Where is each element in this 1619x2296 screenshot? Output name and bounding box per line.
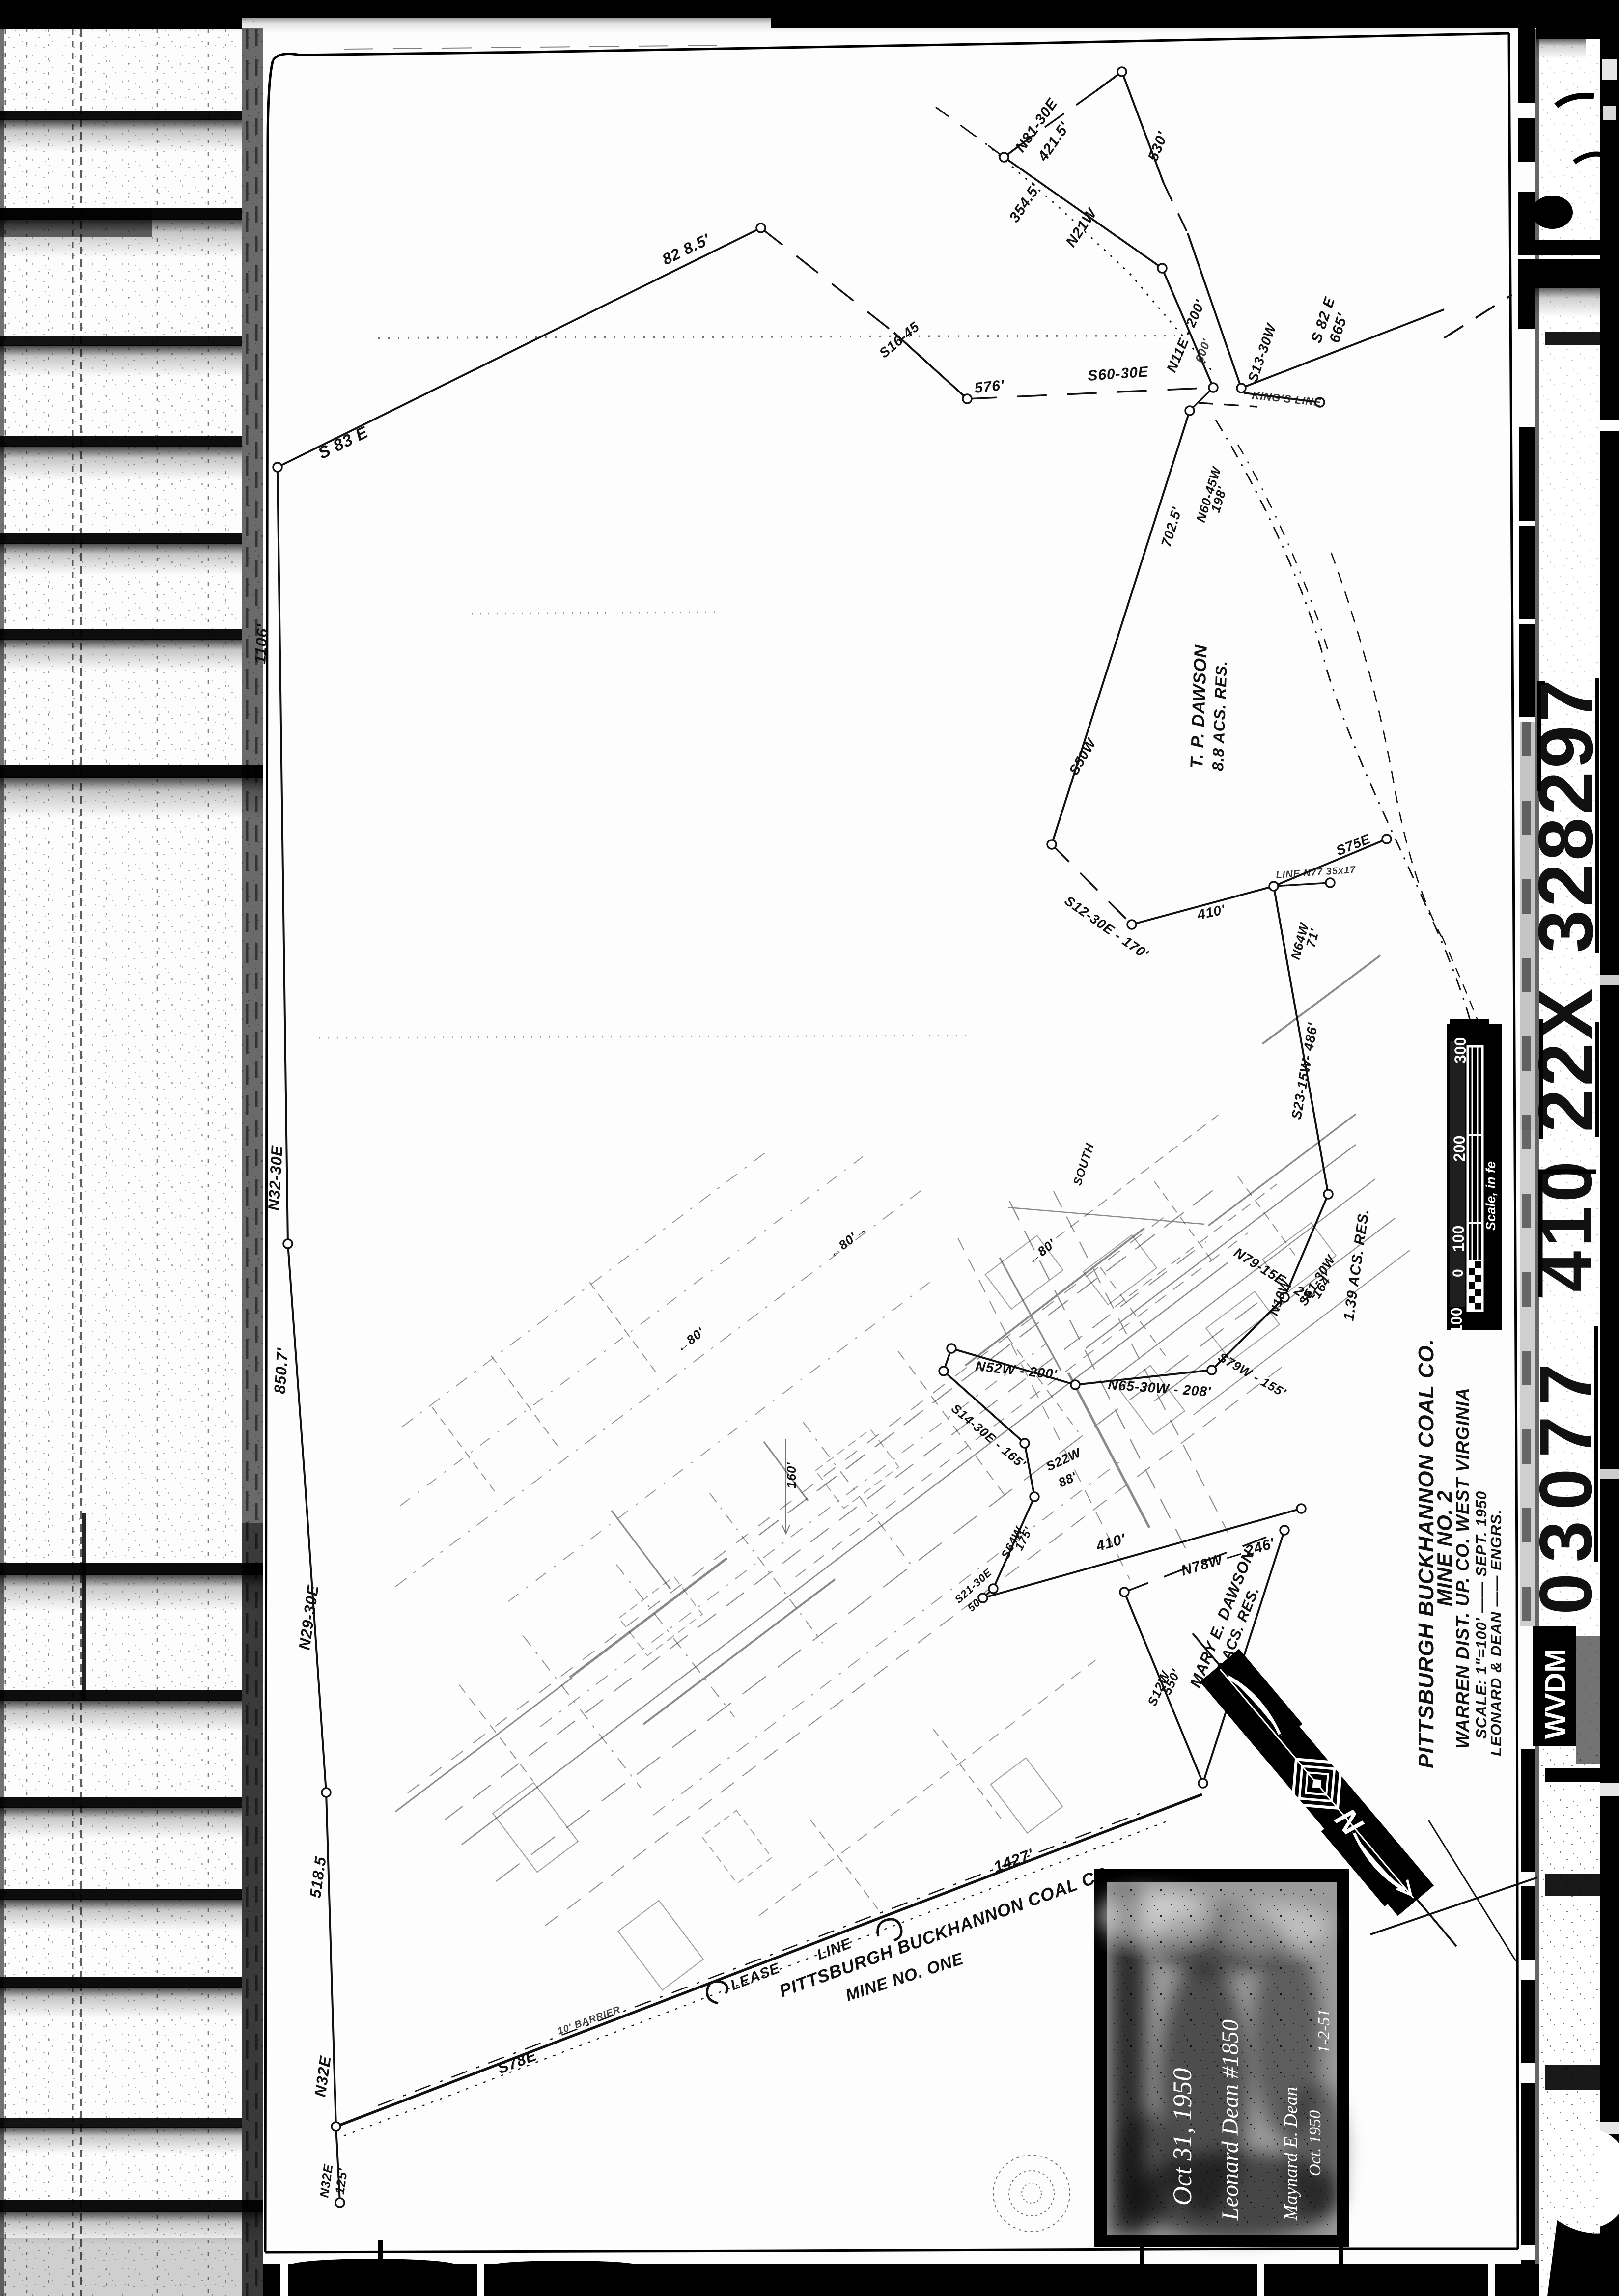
svg-text:300: 300 xyxy=(1452,1037,1469,1064)
svg-text:Scale, in fe: Scale, in fe xyxy=(1483,1161,1498,1231)
svg-text:410: 410 xyxy=(1525,1157,1607,1292)
svg-text:850.7': 850.7' xyxy=(271,1347,291,1394)
svg-text:Oct 31, 1950: Oct 31, 1950 xyxy=(1168,2068,1197,2206)
svg-text:Leonard Dean #1850: Leonard Dean #1850 xyxy=(1217,2019,1243,2221)
svg-text:100: 100 xyxy=(1450,1226,1467,1252)
svg-text:100: 100 xyxy=(1448,1308,1465,1334)
svg-text:1-2-51: 1-2-51 xyxy=(1315,2009,1333,2053)
svg-text:200: 200 xyxy=(1451,1136,1468,1162)
svg-text:WARREN DIST. UP. CO. WEST VIRG: WARREN DIST. UP. CO. WEST VIRGINIA xyxy=(1452,1387,1473,1749)
svg-text:1106': 1106' xyxy=(251,623,272,664)
svg-text:WVDM: WVDM xyxy=(1539,1649,1571,1739)
svg-text:Oct. 1950: Oct. 1950 xyxy=(1306,2110,1324,2176)
svg-text:0: 0 xyxy=(1450,1269,1466,1277)
svg-text:576': 576' xyxy=(974,377,1005,396)
svg-text:LEONARD & DEAN —— ENGRS.: LEONARD & DEAN —— ENGRS. xyxy=(1487,1509,1505,1756)
svg-text:N32-30E: N32-30E xyxy=(265,1145,286,1211)
svg-text:Maynard E. Dean: Maynard E. Dean xyxy=(1281,2087,1301,2221)
